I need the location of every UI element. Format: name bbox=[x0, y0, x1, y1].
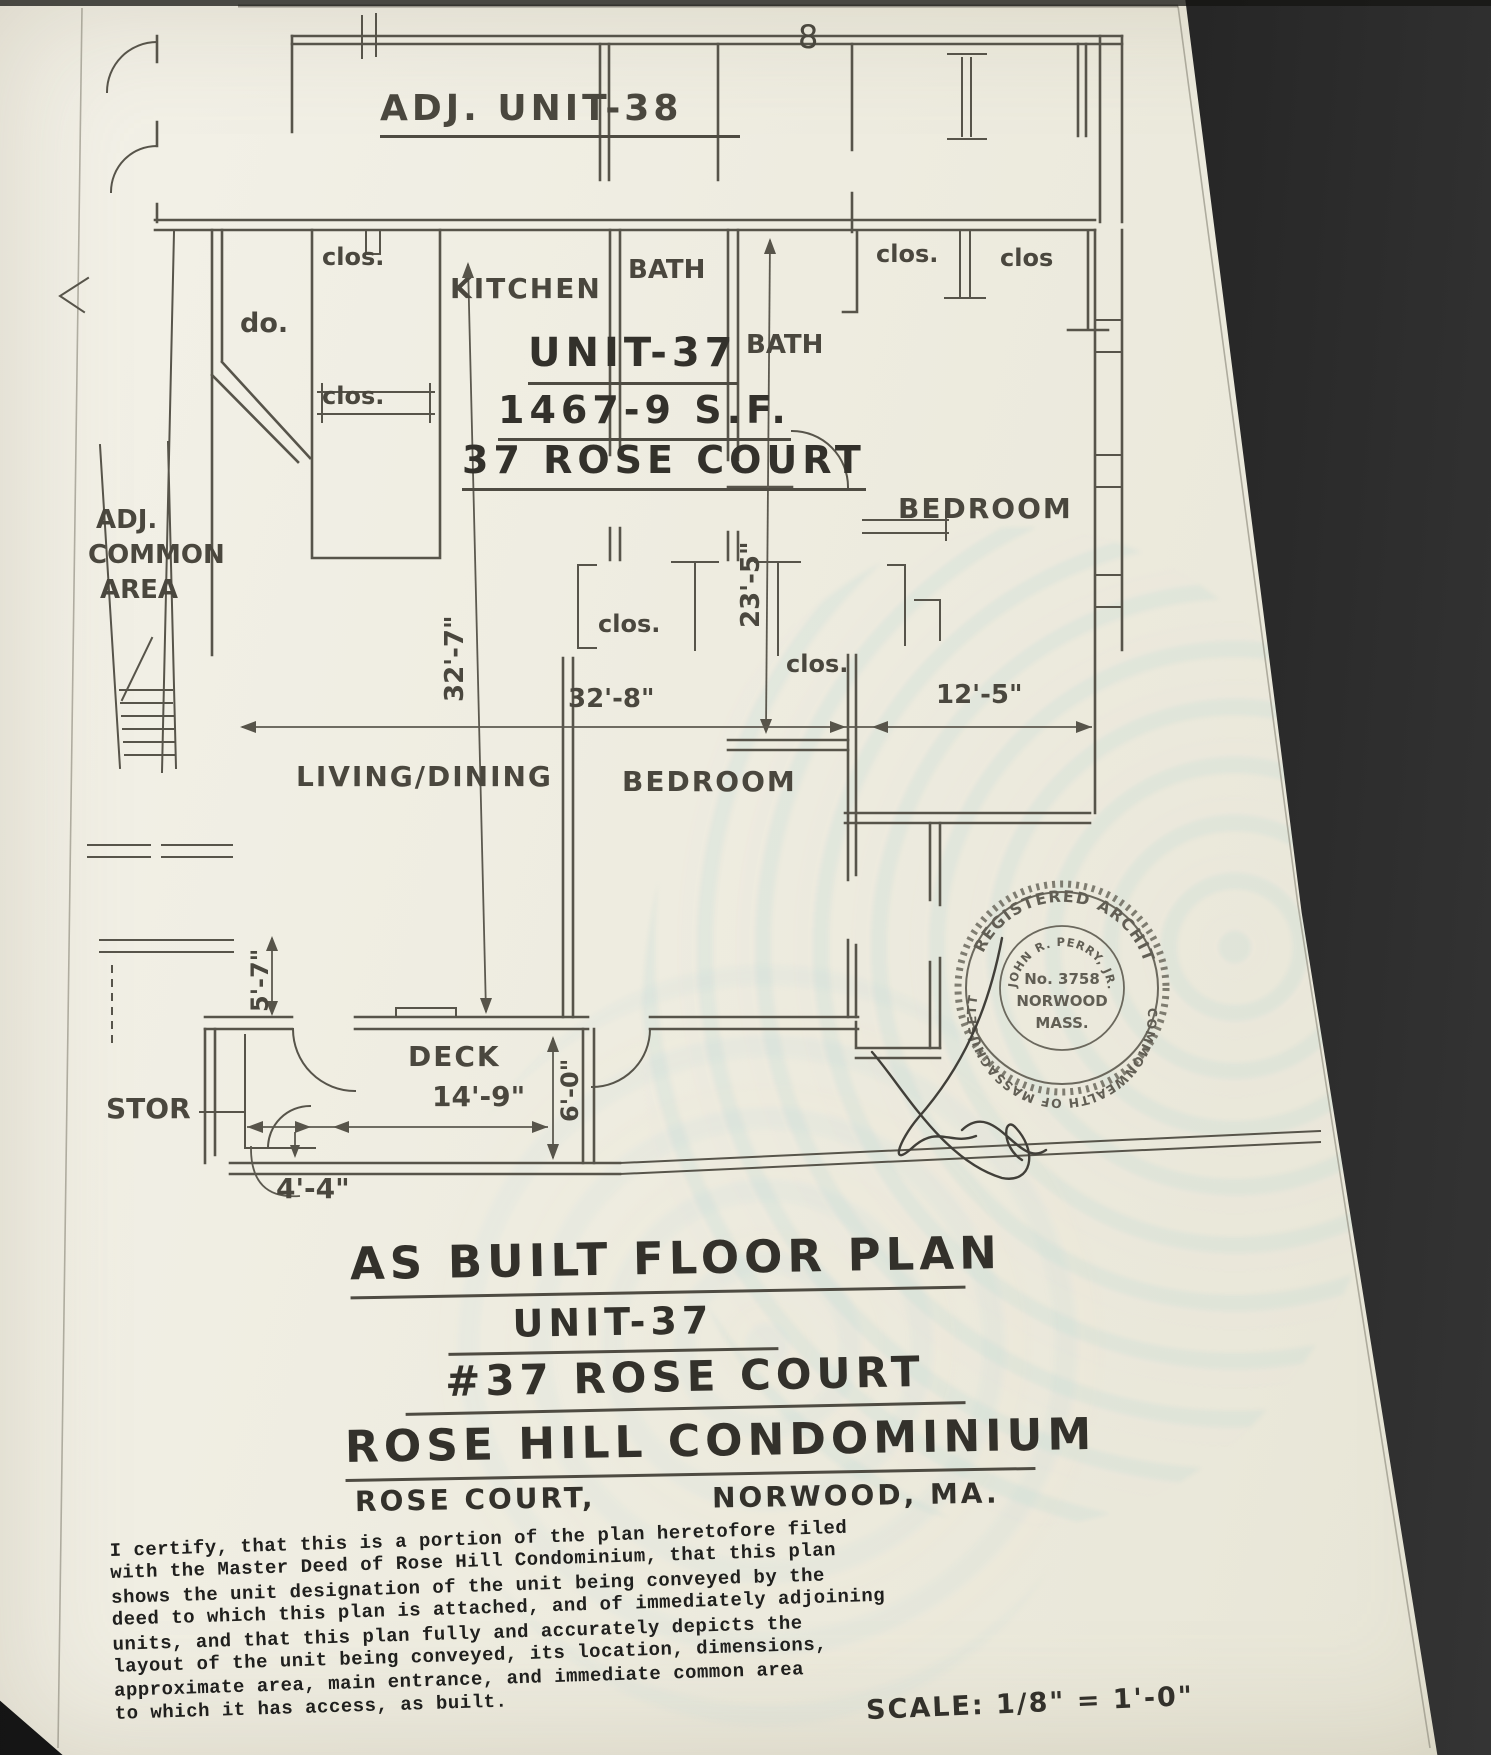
dimension-5-7: 5'-7" bbox=[246, 949, 274, 1012]
seal-number: No. 3758 bbox=[1024, 970, 1100, 988]
closet-label: clos. bbox=[786, 650, 848, 678]
scanned-plan-sheet: REGISTERED ARCHITECT COMMONWEALTH OF MAS… bbox=[0, 0, 1491, 1755]
party-wall bbox=[155, 220, 1095, 230]
title-line-4: ROSE HILL CONDOMINIUM bbox=[345, 1410, 1036, 1482]
dimension-4-4: 4'-4" bbox=[276, 1172, 350, 1205]
dimension-12-5: 12'-5" bbox=[936, 680, 1023, 710]
common-area-label-line2: COMMON bbox=[88, 540, 225, 570]
adjacent-unit-label: ADJ. UNIT-38 bbox=[380, 88, 740, 138]
walls-left-closets bbox=[212, 230, 440, 655]
walls-lower-rooms bbox=[205, 655, 858, 1091]
dimension-14-9: 14'-9" bbox=[432, 1080, 525, 1113]
seal-state: MASS. bbox=[1035, 1014, 1088, 1032]
common-area-label-line1: ADJ. bbox=[96, 505, 157, 535]
title-city-state: NORWOOD, MA. bbox=[712, 1476, 1000, 1514]
common-area-label-line3: AREA bbox=[100, 575, 178, 605]
closet-label: clos. bbox=[876, 240, 938, 268]
dimension-32-7: 32'-7" bbox=[440, 615, 470, 702]
closet-label: clos. bbox=[322, 243, 384, 271]
room-label-bedroom: BEDROOM bbox=[622, 765, 797, 798]
deck-door-swing-arc bbox=[293, 1029, 355, 1091]
closet-label: clos. bbox=[598, 610, 660, 638]
deck-door-swing-arc bbox=[592, 1029, 650, 1087]
unit-number-label: UNIT-37 bbox=[528, 330, 738, 385]
unit-area-label: 1467-9 S.F. bbox=[498, 388, 791, 441]
sheet-left-border-line bbox=[58, 8, 82, 1748]
dimension-23-5: 23'-5" bbox=[736, 541, 766, 628]
walls-right-exterior bbox=[1095, 230, 1122, 813]
room-label-deck: DECK bbox=[408, 1040, 501, 1073]
closet-label: clos bbox=[1000, 244, 1053, 272]
title-line-3: #37 ROSE COURT bbox=[404, 1346, 965, 1416]
common-area-stairs bbox=[100, 232, 176, 772]
room-label-living-dining: LIVING/DINING bbox=[296, 760, 553, 793]
title-street: ROSE COURT, bbox=[355, 1481, 596, 1518]
title-line-1: AS BUILT FLOOR PLAN bbox=[350, 1227, 966, 1300]
walls-lower-left-windows bbox=[88, 845, 233, 1042]
dimension-32-8: 32'-8" bbox=[568, 684, 655, 714]
stray-mark: 8 bbox=[798, 18, 818, 56]
entry-door-swing-arc bbox=[107, 42, 157, 192]
room-label-kitchen: KITCHEN bbox=[450, 272, 602, 305]
closet-label: clos. bbox=[322, 382, 384, 410]
screen-photo: REGISTERED ARCHITECT COMMONWEALTH OF MAS… bbox=[0, 0, 1491, 1755]
margin-scribble-mark bbox=[60, 278, 88, 312]
screen-top-edge bbox=[0, 0, 1491, 6]
ditto-label: do. bbox=[240, 308, 288, 339]
dimension-6-0: 6'-0" bbox=[556, 1059, 584, 1122]
unit-address-label: 37 ROSE COURT bbox=[462, 438, 866, 491]
title-line-2: UNIT-37 bbox=[448, 1297, 779, 1356]
room-label-bedroom: BEDROOM bbox=[898, 492, 1073, 525]
room-label-bath: BATH bbox=[746, 330, 823, 360]
seal-city: NORWOOD bbox=[1016, 992, 1107, 1010]
room-label-bath: BATH bbox=[628, 255, 705, 285]
room-label-storage: STOR bbox=[106, 1092, 191, 1125]
sheet-right-edge-line bbox=[1178, 6, 1430, 1748]
